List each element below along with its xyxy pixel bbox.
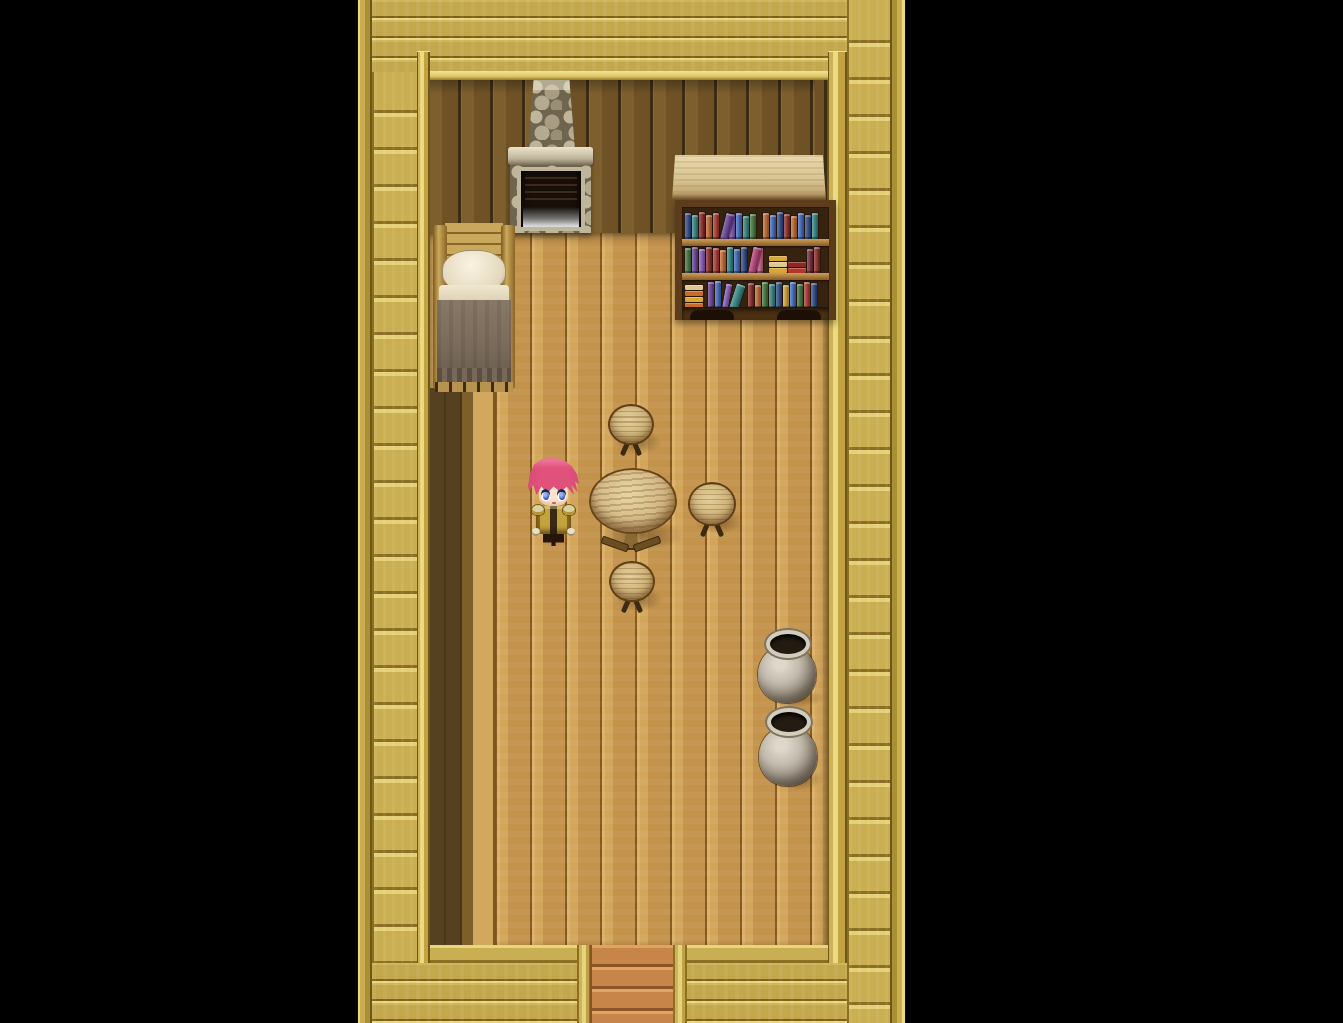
bookshelf-base xyxy=(682,307,829,320)
pot-mouth xyxy=(766,630,810,658)
book-stack xyxy=(788,262,806,273)
book-spine xyxy=(715,281,721,308)
bed[interactable] xyxy=(433,221,515,392)
book-spine xyxy=(734,249,740,273)
book-spine xyxy=(741,247,747,273)
bookshelf-canopy xyxy=(672,155,826,200)
round-table[interactable] xyxy=(589,468,673,554)
book-spine xyxy=(811,283,817,308)
book-spine xyxy=(763,213,769,239)
book-spine xyxy=(812,213,818,239)
wall-left-edge xyxy=(357,0,372,1023)
book-spine xyxy=(769,284,775,308)
door-post-right xyxy=(673,945,687,1023)
book-spine xyxy=(692,247,698,273)
bed-footboard xyxy=(435,382,513,392)
book-spine xyxy=(685,248,691,273)
fireplace-mantel xyxy=(508,147,593,165)
bookshelf-shelf xyxy=(684,280,827,308)
book-spine xyxy=(784,214,790,239)
book-spine xyxy=(804,282,810,308)
bookshelf[interactable] xyxy=(675,200,836,320)
book-spine xyxy=(762,282,768,308)
book-spine xyxy=(692,215,698,239)
book-stack xyxy=(769,256,787,273)
book-spine xyxy=(791,216,797,239)
wall-right-edge xyxy=(890,0,906,1023)
book-spine xyxy=(685,213,691,239)
door-mat[interactable] xyxy=(590,945,677,1023)
wall-top-planks xyxy=(372,0,847,72)
bookshelf-shelf xyxy=(684,212,827,239)
floor-light-plank xyxy=(473,388,496,945)
book-spine xyxy=(783,285,789,308)
character-mouth xyxy=(552,502,556,504)
stool[interactable] xyxy=(608,404,654,456)
table-top xyxy=(589,468,677,534)
character-legs xyxy=(543,534,564,546)
character-hand xyxy=(532,528,540,536)
wall-right-planks xyxy=(847,0,894,1023)
book-spine xyxy=(770,215,776,239)
character-eye xyxy=(541,489,550,501)
character-shoulder xyxy=(532,505,544,515)
book-spine xyxy=(699,212,705,239)
floor-shadow-column xyxy=(462,388,473,945)
book-spine xyxy=(776,282,782,308)
game-stage xyxy=(0,0,1343,1023)
book-spine xyxy=(720,250,726,273)
bookshelf-shelf xyxy=(684,246,827,273)
book-spine xyxy=(699,249,705,273)
book-spine xyxy=(713,213,719,239)
game-viewport[interactable] xyxy=(357,0,906,1023)
book-spine xyxy=(727,247,733,273)
shelf-board xyxy=(682,273,829,280)
player-character[interactable] xyxy=(527,456,580,548)
corner-post-right xyxy=(828,52,847,963)
book-spine xyxy=(797,284,803,308)
character-hand xyxy=(567,528,575,536)
chimney xyxy=(528,80,575,150)
fireplace[interactable] xyxy=(508,80,593,233)
door-post-left xyxy=(577,945,591,1023)
book-spine xyxy=(790,282,796,308)
book-spine xyxy=(706,247,712,273)
clay-pot[interactable] xyxy=(757,708,821,789)
pot-mouth xyxy=(767,708,811,736)
book-spine xyxy=(755,285,761,308)
stool[interactable] xyxy=(609,561,655,613)
book-spine xyxy=(798,213,804,239)
bed-blanket xyxy=(437,300,511,372)
wall-left-planks xyxy=(372,0,421,1023)
fireplace-base xyxy=(510,165,591,233)
book-spine xyxy=(805,215,811,239)
book-spine xyxy=(807,249,813,273)
stool-seat xyxy=(688,482,736,526)
book-spine xyxy=(748,283,754,308)
fireplace-opening xyxy=(521,171,581,227)
floor-shadow-column xyxy=(430,388,462,945)
book-spine xyxy=(814,247,820,273)
book-spine xyxy=(743,216,749,239)
book-spine xyxy=(750,214,756,239)
book-stack xyxy=(685,285,703,308)
book-spine xyxy=(706,215,712,239)
stool[interactable] xyxy=(688,482,736,537)
book-spine xyxy=(777,212,783,239)
book-spine xyxy=(736,213,742,239)
book-spine xyxy=(708,282,714,308)
clay-pot[interactable] xyxy=(756,630,820,707)
character-shoulder xyxy=(563,505,575,515)
character-eye xyxy=(557,489,566,501)
book-spine xyxy=(713,248,719,273)
corner-post-left xyxy=(417,52,430,963)
shelf-board xyxy=(682,239,829,246)
wall-top-ledge xyxy=(417,71,847,80)
